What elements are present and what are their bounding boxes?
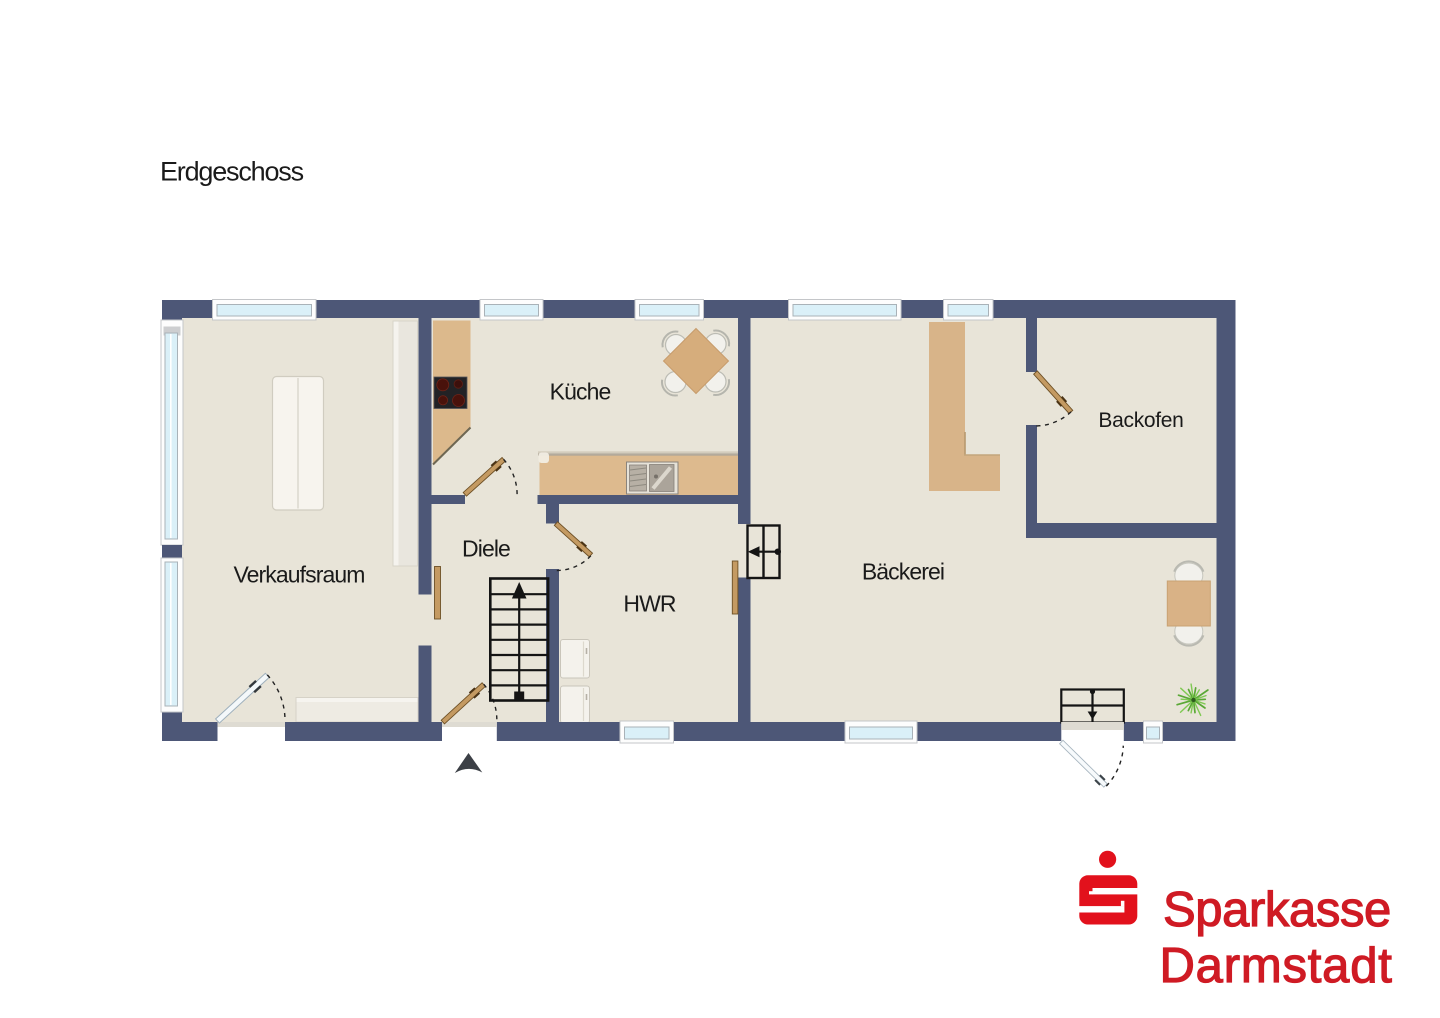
svg-text:Diele: Diele xyxy=(462,536,510,562)
svg-text:Verkaufsraum: Verkaufsraum xyxy=(233,562,364,588)
svg-text:Küche: Küche xyxy=(550,379,611,405)
svg-text:Bäckerei: Bäckerei xyxy=(862,559,944,585)
svg-text:Erdgeschoss: Erdgeschoss xyxy=(160,157,304,187)
svg-text:HWR: HWR xyxy=(623,591,676,617)
svg-text:Darmstadt: Darmstadt xyxy=(1160,939,1393,993)
svg-text:Backofen: Backofen xyxy=(1098,409,1183,432)
svg-text:Sparkasse: Sparkasse xyxy=(1163,883,1391,937)
